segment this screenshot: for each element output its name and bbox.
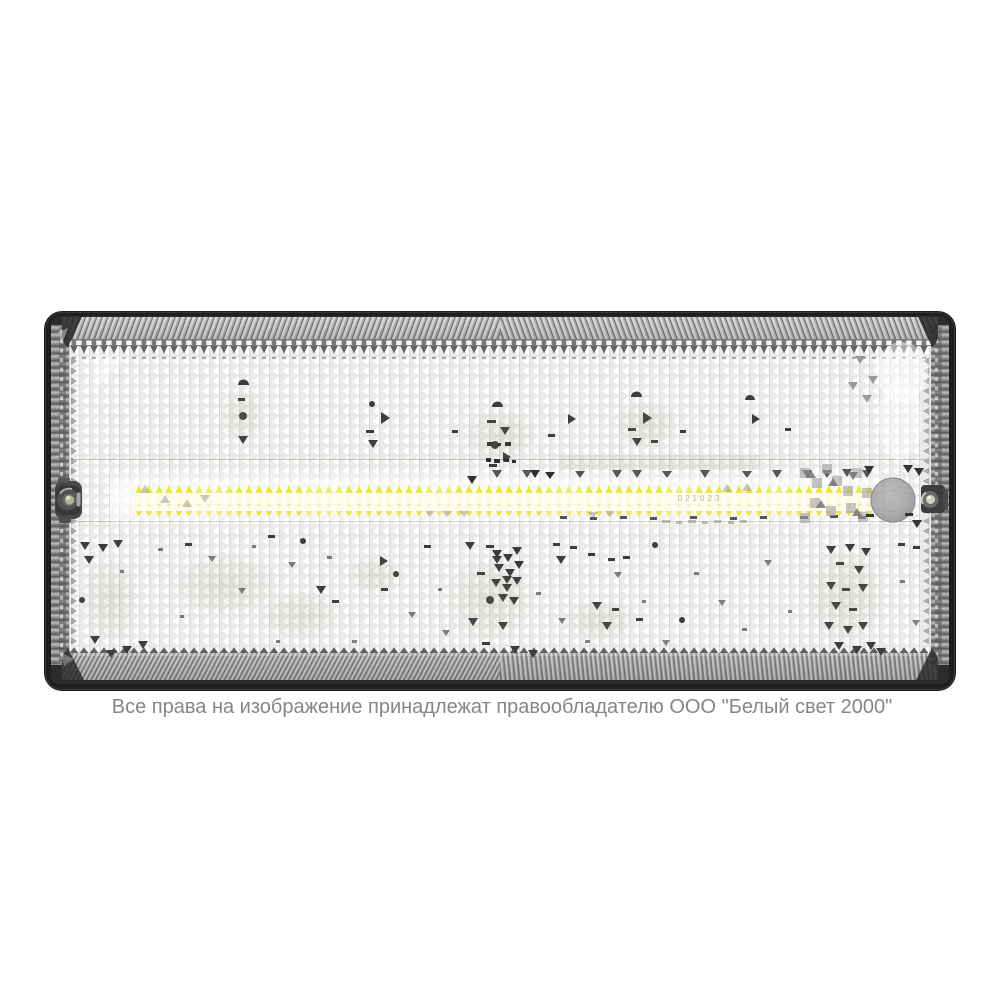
svg-text:Все права на изображение прина: Все права на изображение принадлежат пра… [112, 696, 892, 718]
svg-text:021023: 021023 [678, 494, 723, 503]
